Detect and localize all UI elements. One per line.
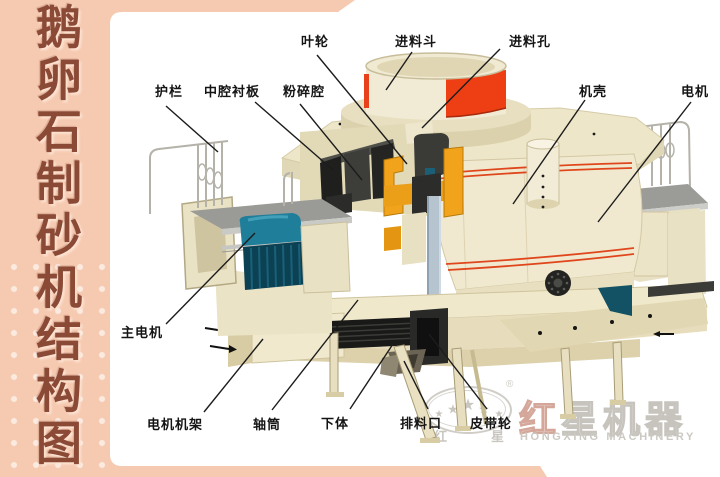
left-guardrail — [150, 141, 292, 214]
main-motor — [240, 213, 309, 290]
label-lower-body: 下体 — [321, 413, 349, 432]
label-motor: 电机 — [681, 81, 709, 100]
label-motor-frame: 电机机架 — [147, 414, 203, 433]
label-crushing-cavity: 粉碎腔 — [283, 81, 325, 100]
label-cavity-liner: 中腔衬板 — [204, 81, 260, 100]
label-feed-hole: 进料孔 — [509, 31, 551, 50]
label-main-motor: 主电机 — [121, 322, 163, 341]
diagram-page: 鹅卵石制砂机结构图 ★ ★ ★ ★ ★ ® 红 星 红星机器 HONGXING … — [0, 0, 720, 477]
label-discharge-port: 排料口 — [400, 413, 442, 432]
label-guardrail: 护栏 — [155, 81, 183, 100]
flange-wheel — [545, 270, 571, 296]
label-casing: 机壳 — [579, 81, 607, 100]
label-impeller: 叶轮 — [301, 31, 329, 50]
support-column — [527, 144, 559, 204]
label-feed-hopper: 进料斗 — [395, 31, 437, 50]
machine-illustration — [0, 0, 720, 477]
label-shaft-tube: 轴筒 — [253, 414, 281, 433]
label-belt-pulley: 皮带轮 — [470, 413, 512, 432]
